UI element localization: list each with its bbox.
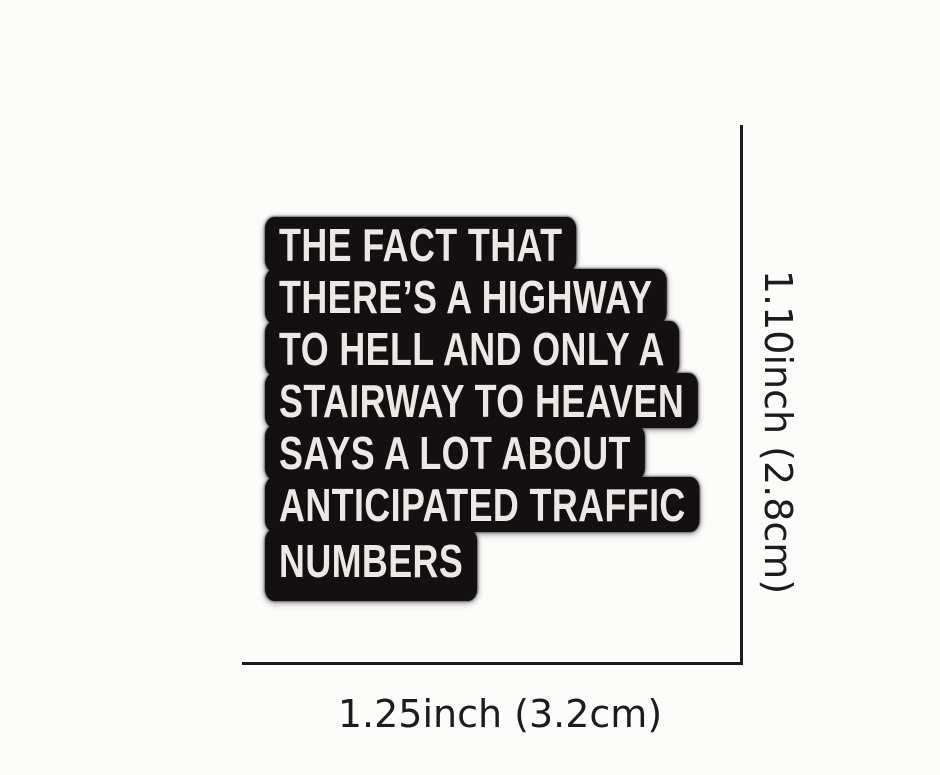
height-dimension-label: 1.10inch (2.8cm) bbox=[756, 270, 800, 594]
enamel-pin: THE FACT THAT THERE’S A HIGHWAY TO HELL … bbox=[265, 217, 822, 601]
pin-line-text: ANTICIPATED TRAFFIC bbox=[279, 482, 686, 528]
width-dimension-label: 1.25inch (3.2cm) bbox=[338, 692, 662, 736]
pin-line: THE FACT THAT bbox=[265, 217, 577, 272]
pin-line: THERE’S A HIGHWAY bbox=[265, 269, 667, 324]
pin-line-text: TO HELL AND ONLY A bbox=[279, 326, 665, 372]
pin-line-text: NUMBERS bbox=[279, 538, 463, 584]
pin-line: SAYS A LOT ABOUT bbox=[265, 425, 645, 480]
product-photo: THE FACT THAT THERE’S A HIGHWAY TO HELL … bbox=[0, 0, 940, 775]
pin-line-text: THE FACT THAT bbox=[279, 222, 562, 268]
pin-line: ANTICIPATED TRAFFIC bbox=[265, 477, 700, 532]
height-dimension-line bbox=[740, 125, 743, 665]
width-dimension-line bbox=[242, 662, 743, 665]
pin-line-text: STAIRWAY TO HEAVEN bbox=[279, 378, 684, 424]
pin-line: STAIRWAY TO HEAVEN bbox=[265, 373, 698, 428]
pin-line: TO HELL AND ONLY A bbox=[265, 321, 679, 376]
pin-line: NUMBERS bbox=[265, 529, 477, 601]
pin-line-text: THERE’S A HIGHWAY bbox=[279, 274, 652, 320]
pin-line-text: SAYS A LOT ABOUT bbox=[279, 430, 631, 476]
